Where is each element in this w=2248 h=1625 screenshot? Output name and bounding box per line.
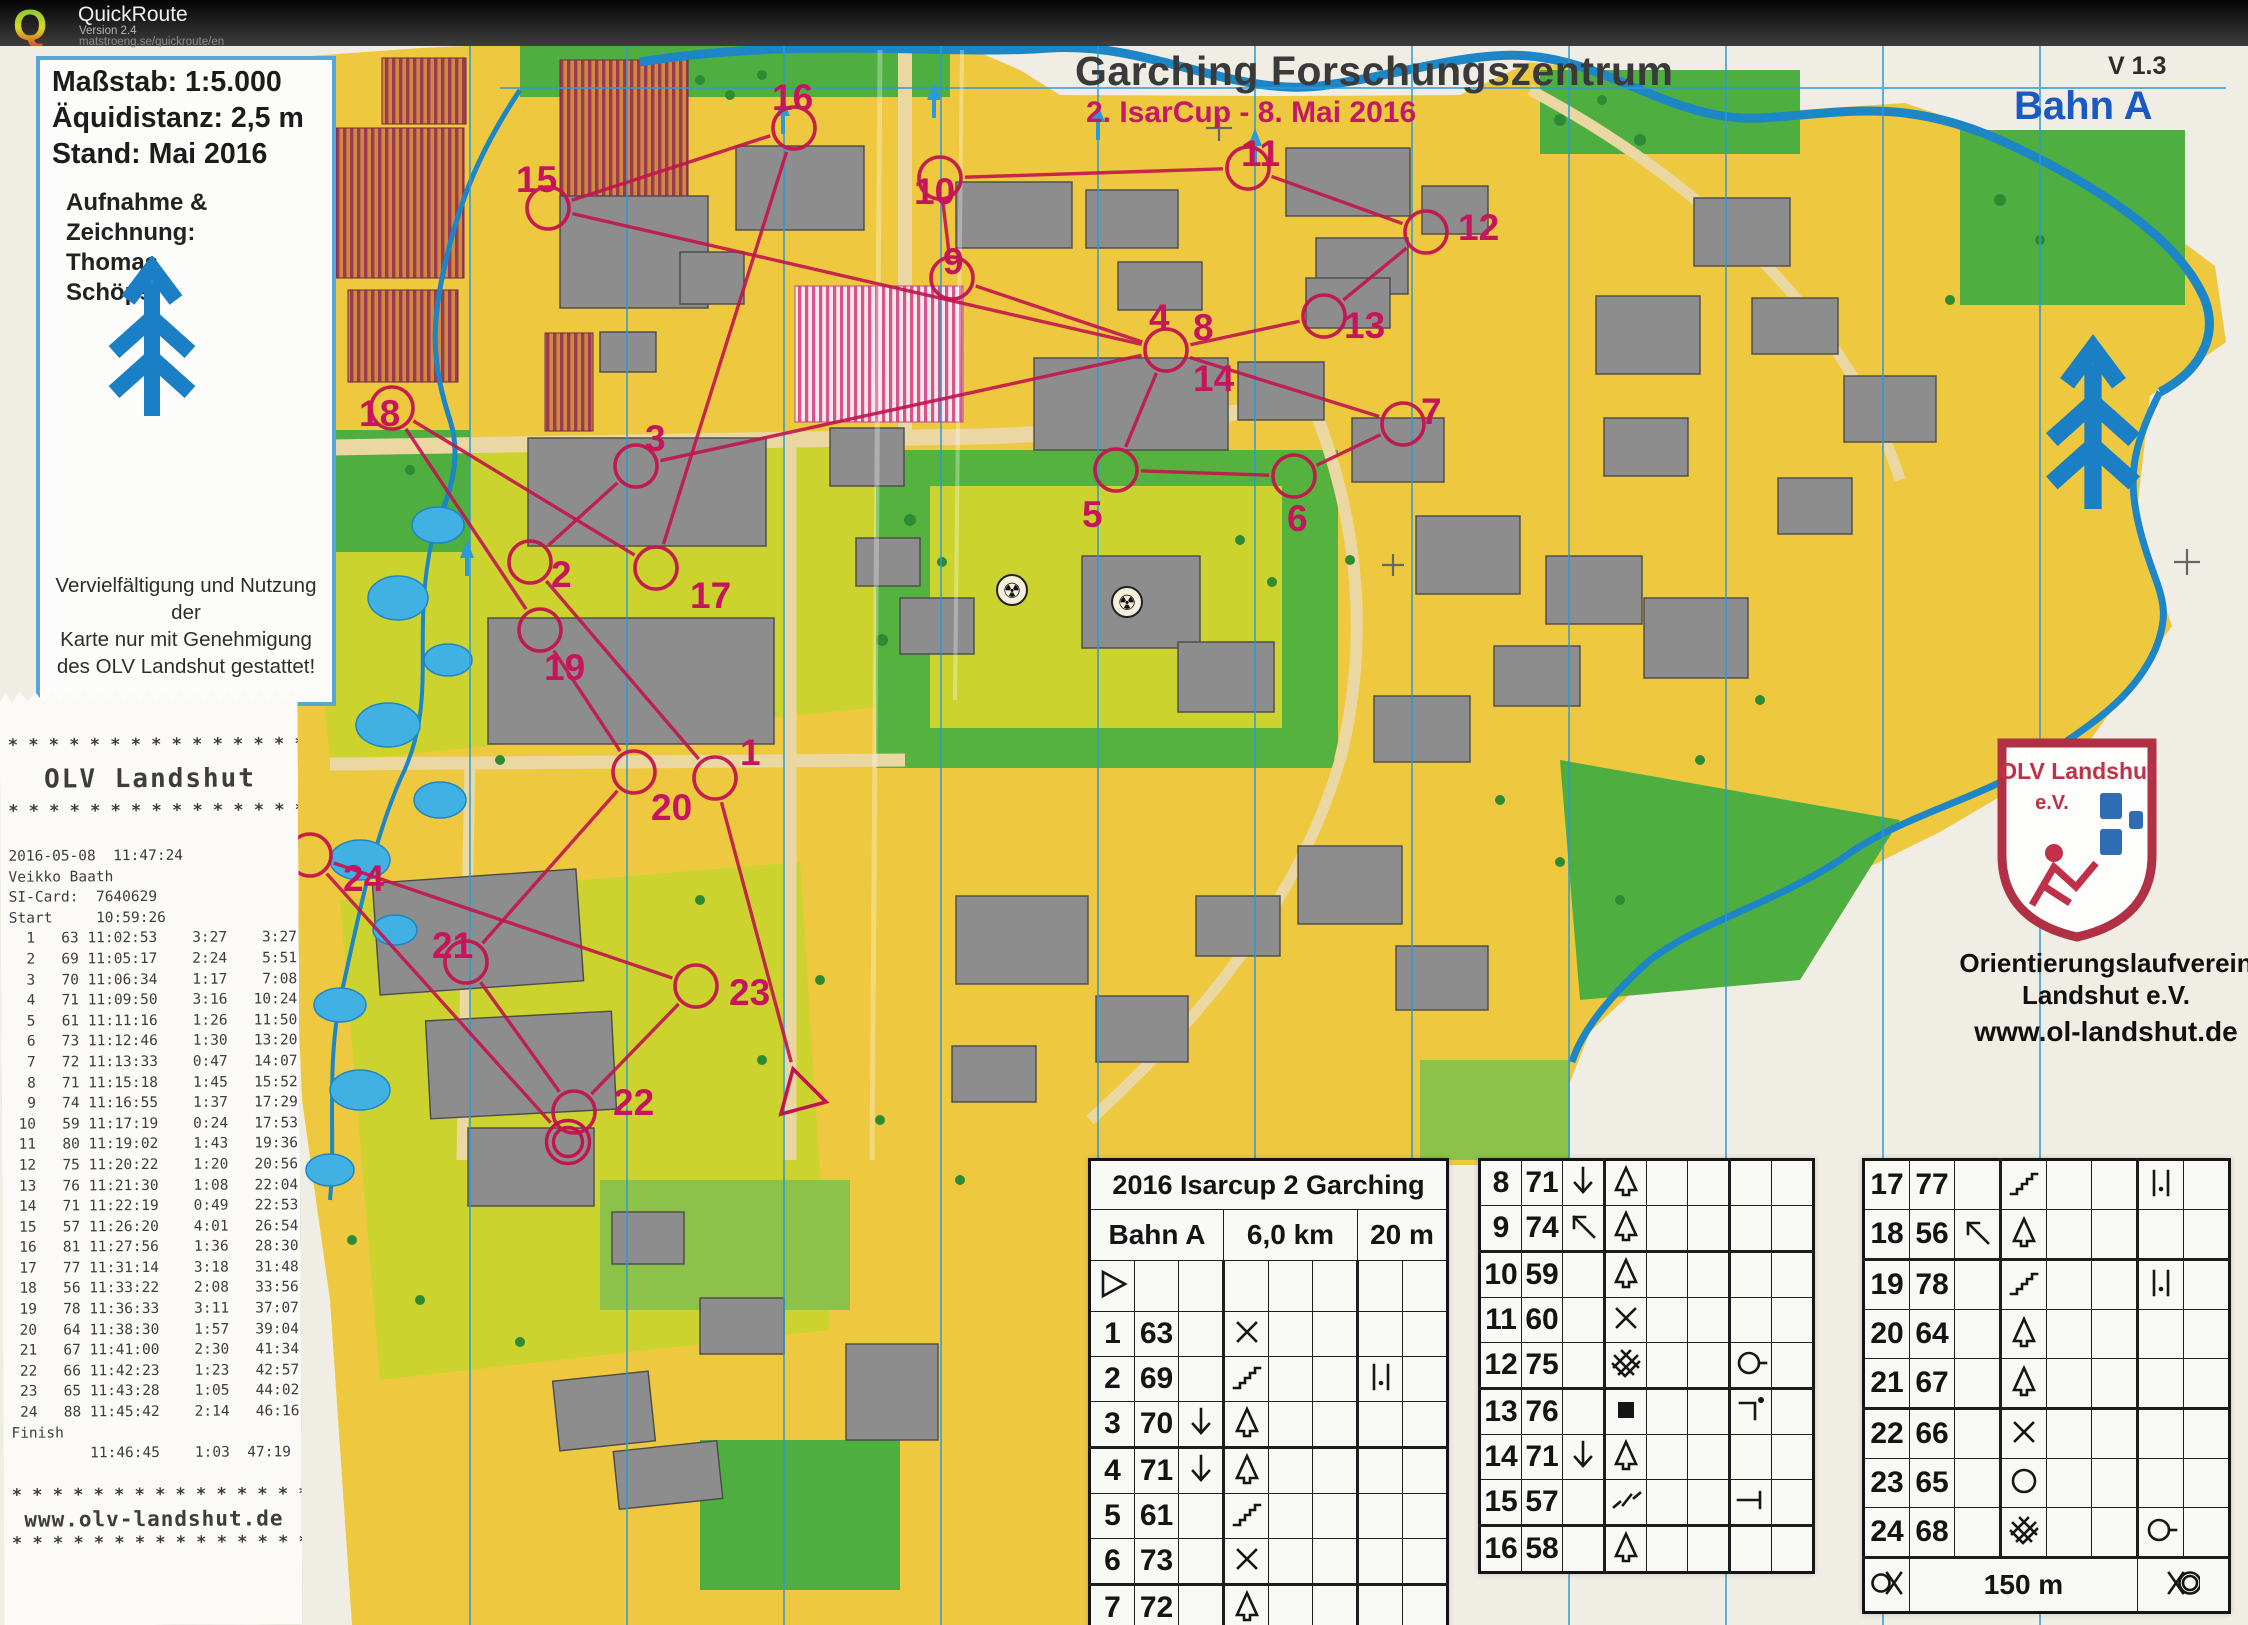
cd-cell — [1179, 1494, 1224, 1539]
svg-text:e.V.: e.V. — [2035, 792, 2069, 814]
cd-cell — [1135, 1261, 1179, 1312]
tree-icon — [1609, 1256, 1643, 1290]
square-icon — [1609, 1393, 1643, 1427]
control-number-12: 12 — [1458, 207, 1499, 248]
cd-cell — [1269, 1312, 1313, 1357]
cd-cell: 78 — [1910, 1260, 1955, 1310]
cd-cell: 71 — [1135, 1448, 1179, 1494]
cd-cell: Bahn A — [1090, 1210, 1224, 1261]
between-icon — [1364, 1360, 1398, 1394]
cd-cell — [1563, 1160, 1605, 1206]
cross-icon — [1230, 1542, 1264, 1576]
tree-icon — [2007, 1315, 2041, 1349]
cd-cell — [1313, 1539, 1358, 1585]
cd-cell — [1563, 1480, 1605, 1526]
cd-cell — [1403, 1261, 1448, 1312]
start-icon — [1096, 1267, 1130, 1301]
cd-cell: 76 — [1522, 1389, 1563, 1435]
control-number-23: 23 — [729, 972, 770, 1013]
control-descriptions-sheet-1: 2016 Isarcup 2 GarchingBahn A6,0 km20 m1… — [1088, 1158, 1449, 1625]
cd-cell — [1605, 1435, 1647, 1480]
cd-cell: 1 — [1090, 1312, 1135, 1357]
cd-cell — [1688, 1389, 1730, 1435]
cd-cell — [1688, 1435, 1730, 1480]
cd-cell — [1358, 1494, 1403, 1539]
cd-cell — [1605, 1389, 1647, 1435]
cd-cell — [1563, 1526, 1605, 1573]
cd-cell: 73 — [1135, 1539, 1179, 1585]
cd-cell: 16 — [1480, 1526, 1522, 1573]
cd-cell: 12 — [1480, 1343, 1522, 1389]
cd-cell — [1313, 1448, 1358, 1494]
tree-icon — [1609, 1530, 1643, 1564]
cd-cell: 77 — [1910, 1160, 1955, 1210]
cd-cell — [2138, 1160, 2184, 1210]
cd-cell — [1403, 1357, 1448, 1402]
cd-cell — [2092, 1260, 2138, 1310]
cd-cell — [2092, 1310, 2138, 1359]
control-number-18: 18 — [359, 393, 400, 434]
cd-cell — [1647, 1298, 1688, 1343]
control-number-10: 10 — [914, 171, 955, 212]
north-arrow-icon — [2028, 330, 2158, 520]
cd-cell: 64 — [1910, 1310, 1955, 1359]
control-number-21: 21 — [432, 925, 473, 966]
cd-cell — [1224, 1585, 1269, 1625]
cd-cell: 13 — [1480, 1389, 1522, 1435]
cross-icon — [1230, 1315, 1264, 1349]
map-version-label: V 1.3 — [2108, 52, 2166, 81]
cd-cell — [1605, 1206, 1647, 1252]
cd-cell — [1647, 1526, 1688, 1573]
cd-cell — [1563, 1389, 1605, 1435]
cd-cell: 20 — [1864, 1310, 1910, 1359]
control-number-11: 11 — [1241, 133, 1280, 174]
stairs-icon — [1230, 1497, 1264, 1531]
cd-cell — [1179, 1585, 1224, 1625]
cd-cell: 24 — [1864, 1508, 1910, 1558]
cd-cell: 5 — [1090, 1494, 1135, 1539]
cd-cell: 68 — [1910, 1508, 1955, 1558]
green-area — [700, 1440, 900, 1590]
cd-cell — [2047, 1409, 2092, 1459]
corner-dot-icon — [1734, 1393, 1768, 1427]
cd-cell — [2092, 1359, 2138, 1409]
control-number-20: 20 — [651, 787, 692, 828]
tree-icon — [2007, 1215, 2041, 1249]
cd-cell — [2092, 1508, 2138, 1558]
cd-cell — [1563, 1252, 1605, 1298]
cd-cell: 15 — [1480, 1480, 1522, 1526]
app-title: QuickRoute — [78, 3, 188, 27]
control-number-17: 17 — [690, 575, 731, 616]
cd-cell: 20 m — [1358, 1210, 1448, 1261]
control-number-6: 6 — [1287, 498, 1308, 539]
cd-cell: 3 — [1090, 1402, 1135, 1448]
cd-cell — [2001, 1310, 2047, 1359]
tree-icon — [1230, 1589, 1264, 1623]
cd-cell — [1955, 1160, 2001, 1210]
cd-cell: 57 — [1522, 1480, 1563, 1526]
cd-cell — [2138, 1210, 2184, 1260]
cd-cell — [2092, 1459, 2138, 1508]
cd-cell — [1605, 1298, 1647, 1343]
cd-cell — [2138, 1359, 2184, 1409]
cd-cell: 11 — [1480, 1298, 1522, 1343]
cd-cell — [2001, 1508, 2047, 1558]
map-info-box: Maßstab: 1:5.000 Äquidistanz: 2,5 m Stan… — [36, 56, 336, 706]
cd-cell — [2184, 1160, 2230, 1210]
cd-cell — [2092, 1409, 2138, 1459]
cd-cell — [1955, 1260, 2001, 1310]
cd-cell: 69 — [1135, 1357, 1179, 1402]
cd-cell — [1269, 1261, 1313, 1312]
cd-cell — [2138, 1508, 2184, 1558]
cd-cell — [2184, 1359, 2230, 1409]
app-header: Q QuickRoute Version 2.4 matstroeng.se/q… — [0, 0, 2248, 46]
green-area — [1960, 130, 2185, 305]
cd-cell — [2047, 1260, 2092, 1310]
cd-cell — [2092, 1160, 2138, 1210]
club-website: www.ol-landshut.de — [1920, 1016, 2248, 1048]
cd-cell — [2001, 1459, 2047, 1508]
cd-cell — [2001, 1210, 2047, 1260]
control-number-5: 5 — [1082, 494, 1103, 535]
cd-cell — [1688, 1480, 1730, 1526]
cd-cell — [2138, 1260, 2184, 1310]
cd-cell — [1224, 1312, 1269, 1357]
cd-cell — [1605, 1480, 1647, 1526]
cd-cell — [1313, 1312, 1358, 1357]
cd-cell — [1605, 1252, 1647, 1298]
map-equidistance: Äquidistanz: 2,5 m — [52, 102, 304, 135]
map-state: Stand: Mai 2016 — [52, 138, 267, 171]
cd-cell: 17 — [1864, 1160, 1910, 1210]
receipt-divider: * * * * * * * * * * * * * * * * * — [8, 733, 292, 756]
svg-text:Q: Q — [13, 2, 47, 46]
cd-cell — [1179, 1357, 1224, 1402]
cd-cell: 19 — [1864, 1260, 1910, 1310]
control-number-13: 13 — [1344, 305, 1385, 346]
receipt-split-list: 2016-05-08 11:47:24 Veikko Baath SI-Card… — [8, 845, 295, 1464]
cd-cell — [1955, 1508, 2001, 1558]
cd-sheet-title: 2016 Isarcup 2 Garching — [1090, 1160, 1448, 1210]
club-name-line2: Landshut e.V. — [1920, 980, 2248, 1011]
cd-cell — [1647, 1343, 1688, 1389]
cd-cell — [1605, 1160, 1647, 1206]
circle-tail-icon — [1734, 1346, 1768, 1380]
cd-cell — [1179, 1312, 1224, 1357]
cd-cell — [1730, 1389, 1772, 1435]
cd-cell — [1269, 1585, 1313, 1625]
cd-cell — [1563, 1206, 1605, 1252]
receipt-divider: * * * * * * * * * * * * * * * * * — [12, 1483, 296, 1506]
cd-cell — [1358, 1448, 1403, 1494]
cd-cell — [1358, 1402, 1403, 1448]
cd-cell: 67 — [1910, 1359, 1955, 1409]
control-descriptions-sheet-2: 8719741059116012751376147115571658 — [1478, 1158, 1815, 1574]
split-times-receipt: * * * * * * * * * * * * * * * * * OLV La… — [0, 687, 302, 1625]
cd-cell — [1224, 1357, 1269, 1402]
cd-cell — [1605, 1343, 1647, 1389]
cd-cell: 22 — [1864, 1409, 1910, 1459]
svg-text:OLV Landshut: OLV Landshut — [1999, 758, 2155, 784]
junction-icon — [1609, 1483, 1643, 1517]
cd-cell — [2047, 1210, 2092, 1260]
cd-cell — [1772, 1389, 1814, 1435]
cd-cell — [1688, 1298, 1730, 1343]
arrow-upleft-icon — [1960, 1215, 1994, 1249]
cd-cell — [1269, 1448, 1313, 1494]
cd-cell — [1647, 1435, 1688, 1480]
north-arrow-icon — [92, 256, 212, 421]
cd-cell: 14 — [1480, 1435, 1522, 1480]
club-shield-logo: OLV Landshut e.V. — [1992, 735, 2162, 945]
cd-cell — [2047, 1359, 2092, 1409]
cd-cell — [1730, 1160, 1772, 1206]
cd-cell — [1563, 1298, 1605, 1343]
control-number-4: 4 — [1149, 297, 1170, 338]
cd-cell — [1179, 1402, 1224, 1448]
cd-cell — [1730, 1252, 1772, 1298]
cd-cell — [1269, 1402, 1313, 1448]
cd-cell — [1403, 1402, 1448, 1448]
cd-cell — [1403, 1312, 1448, 1357]
cd-cell: 71 — [1522, 1435, 1563, 1480]
cd-cell — [1772, 1298, 1814, 1343]
cd-cell: 61 — [1135, 1494, 1179, 1539]
cd-cell — [2047, 1459, 2092, 1508]
cd-cell — [1313, 1494, 1358, 1539]
cd-cell: 2 — [1090, 1357, 1135, 1402]
cd-cell — [1730, 1435, 1772, 1480]
cd-cell: 8 — [1480, 1160, 1522, 1206]
cd-cell — [1313, 1261, 1358, 1312]
control-number-24: 24 — [343, 858, 385, 899]
between-icon — [2144, 1266, 2178, 1300]
cross-icon — [2007, 1415, 2041, 1449]
control-number-9: 9 — [943, 241, 964, 282]
cd-cell — [1772, 1480, 1814, 1526]
cd-cell — [1688, 1343, 1730, 1389]
cd-cell — [1730, 1343, 1772, 1389]
cd-cell — [2184, 1310, 2230, 1359]
route-start-icon — [1870, 1566, 1904, 1600]
tape-end-icon — [1734, 1483, 1768, 1517]
cd-cell: 9 — [1480, 1206, 1522, 1252]
cd-cell: 21 — [1864, 1359, 1910, 1409]
cd-cell — [1688, 1526, 1730, 1573]
cd-cell: 150 m — [1910, 1558, 2138, 1613]
cd-cell — [1403, 1448, 1448, 1494]
cd-cell: 59 — [1522, 1252, 1563, 1298]
cd-cell — [1730, 1206, 1772, 1252]
cd-cell — [1224, 1539, 1269, 1585]
cross-icon — [1609, 1301, 1643, 1335]
cd-cell — [1179, 1261, 1224, 1312]
receipt-club-banner: OLV Landshut — [8, 763, 292, 794]
cd-cell — [1224, 1494, 1269, 1539]
cd-cell — [2001, 1260, 2047, 1310]
cd-cell — [1730, 1480, 1772, 1526]
cd-cell — [1647, 1252, 1688, 1298]
cd-cell — [1269, 1494, 1313, 1539]
cd-cell: 75 — [1522, 1343, 1563, 1389]
arrow-down-icon — [1566, 1438, 1600, 1472]
cd-cell — [1647, 1206, 1688, 1252]
circle-icon — [2007, 1464, 2041, 1498]
cd-cell — [1955, 1310, 2001, 1359]
cd-cell — [1647, 1160, 1688, 1206]
cd-cell — [2184, 1210, 2230, 1260]
stairs-icon — [2007, 1166, 2041, 1200]
cd-cell — [1090, 1261, 1135, 1312]
receipt-divider: * * * * * * * * * * * * * * * * * — [8, 799, 292, 822]
receipt-divider: * * * * * * * * * * * * * * * * * — [12, 1531, 296, 1554]
cd-cell — [1688, 1206, 1730, 1252]
cd-cell — [1403, 1585, 1448, 1625]
tree-icon — [1609, 1438, 1643, 1472]
green-area — [1420, 1060, 1570, 1160]
between-icon — [2144, 1166, 2178, 1200]
cd-cell: 6 — [1090, 1539, 1135, 1585]
event-subtitle: 2. IsarCup - 8. Mai 2016 — [1086, 96, 1416, 130]
cd-cell: 71 — [1522, 1160, 1563, 1206]
circle-tail-icon — [2144, 1513, 2178, 1547]
cd-cell: 66 — [1910, 1409, 1955, 1459]
receipt-website: www.olv-landshut.de — [12, 1505, 296, 1532]
cd-cell — [1358, 1312, 1403, 1357]
cd-cell — [1955, 1409, 2001, 1459]
quickroute-logo-icon: Q — [10, 2, 54, 46]
cd-cell — [1688, 1252, 1730, 1298]
control-number-15: 15 — [516, 159, 557, 200]
cd-cell — [1955, 1359, 2001, 1409]
cd-cell — [1269, 1357, 1313, 1402]
svg-text:☢: ☢ — [1118, 592, 1137, 615]
cd-cell — [1179, 1539, 1224, 1585]
cd-cell — [1772, 1343, 1814, 1389]
cd-cell — [1313, 1357, 1358, 1402]
control-number-19: 19 — [544, 647, 585, 688]
cd-cell: 10 — [1480, 1252, 1522, 1298]
tree-icon — [1609, 1164, 1643, 1198]
cd-cell — [1688, 1160, 1730, 1206]
cd-cell — [2047, 1160, 2092, 1210]
cd-cell — [2001, 1409, 2047, 1459]
cd-cell: 65 — [1910, 1459, 1955, 1508]
cd-cell — [2184, 1260, 2230, 1310]
cd-cell — [1772, 1206, 1814, 1252]
arrow-down-icon — [1184, 1405, 1218, 1439]
control-number-22: 22 — [613, 1082, 654, 1123]
cd-cell: 18 — [1864, 1210, 1910, 1260]
control-number-7: 7 — [1421, 391, 1442, 432]
control-descriptions-sheet-3: 17771856197820642167226623652468150 m — [1862, 1158, 2231, 1614]
tree-icon — [1609, 1209, 1643, 1243]
thicket-icon — [2007, 1513, 2041, 1547]
cd-cell — [1772, 1435, 1814, 1480]
cd-cell: 70 — [1135, 1402, 1179, 1448]
cd-cell — [1358, 1357, 1403, 1402]
cd-cell: 72 — [1135, 1585, 1179, 1625]
cd-cell — [2001, 1359, 2047, 1409]
cd-cell — [1269, 1539, 1313, 1585]
cd-cell: 4 — [1090, 1448, 1135, 1494]
cd-cell — [1563, 1435, 1605, 1480]
cd-cell — [1647, 1389, 1688, 1435]
cd-cell — [1730, 1298, 1772, 1343]
cd-cell — [1358, 1585, 1403, 1625]
control-number-16: 16 — [772, 77, 813, 118]
cd-cell: 6,0 km — [1224, 1210, 1358, 1261]
tree-icon — [2007, 1364, 2041, 1398]
cd-cell — [2138, 1310, 2184, 1359]
arrow-down-icon — [1184, 1452, 1218, 1486]
tree-icon — [1230, 1452, 1264, 1486]
cd-cell — [2138, 1459, 2184, 1508]
control-number-8: 8 — [1193, 307, 1214, 348]
cd-cell — [2001, 1160, 2047, 1210]
cd-cell — [1955, 1459, 2001, 1508]
cd-cell: 60 — [1522, 1298, 1563, 1343]
cd-cell — [1179, 1448, 1224, 1494]
tree-icon — [1230, 1405, 1264, 1439]
app-url: matstroeng.se/quickroute/en — [79, 37, 224, 48]
thicket-icon — [1609, 1346, 1643, 1380]
cd-cell — [2184, 1508, 2230, 1558]
cd-cell — [2047, 1310, 2092, 1359]
control-number-14: 14 — [1193, 358, 1235, 399]
route-finish-icon — [2166, 1566, 2200, 1600]
control-number-2: 2 — [551, 554, 572, 595]
cd-cell — [2184, 1409, 2230, 1459]
cd-cell — [1563, 1343, 1605, 1389]
cd-cell — [2047, 1508, 2092, 1558]
cd-cell: 56 — [1910, 1210, 1955, 1260]
cd-cell — [1224, 1402, 1269, 1448]
cd-cell — [1313, 1585, 1358, 1625]
cd-cell: 63 — [1135, 1312, 1179, 1357]
stairs-icon — [1230, 1360, 1264, 1394]
map-copyright: Vervielfältigung und Nutzung der Karte n… — [42, 572, 330, 680]
club-name-line1: Orientierungslaufverein — [1920, 948, 2248, 979]
cd-cell — [2138, 1558, 2230, 1613]
course-label: Bahn A — [2014, 84, 2153, 129]
cd-cell — [1647, 1480, 1688, 1526]
quickroute-window: ☢ ☢ 123456789101112131415161718192021222… — [0, 0, 2248, 1625]
cd-cell — [1358, 1261, 1403, 1312]
cd-cell — [1224, 1448, 1269, 1494]
cd-cell — [1772, 1526, 1814, 1573]
cd-cell — [1605, 1526, 1647, 1573]
cd-cell — [1224, 1261, 1269, 1312]
cd-cell: 7 — [1090, 1585, 1135, 1625]
cd-cell: 74 — [1522, 1206, 1563, 1252]
arrow-upleft-icon — [1566, 1209, 1600, 1243]
cd-cell — [1403, 1539, 1448, 1585]
cd-cell — [1955, 1210, 2001, 1260]
cd-cell: 58 — [1522, 1526, 1563, 1573]
cd-cell — [1403, 1494, 1448, 1539]
map-title: Garching Forschungszentrum — [1075, 48, 1673, 95]
cd-cell: 23 — [1864, 1459, 1910, 1508]
arrow-down-icon — [1566, 1164, 1600, 1198]
cd-cell — [1772, 1252, 1814, 1298]
cd-cell — [1730, 1526, 1772, 1573]
control-number-1: 1 — [740, 732, 761, 773]
cd-cell — [1864, 1558, 1910, 1613]
